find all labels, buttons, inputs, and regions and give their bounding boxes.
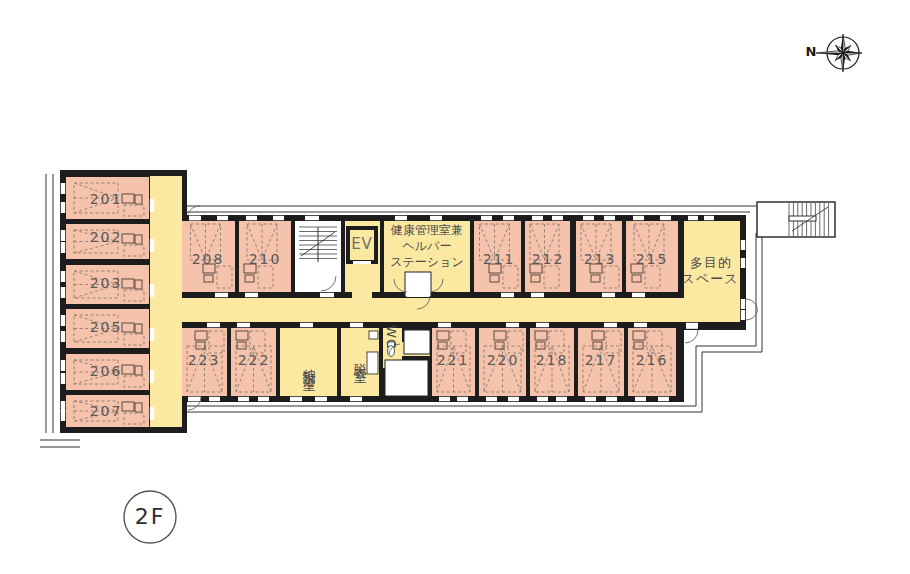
door-gap bbox=[531, 293, 544, 297]
wall-opening bbox=[688, 216, 698, 220]
window-gap bbox=[217, 216, 228, 220]
floor-plan: 201 202 203 205 206 207 208 210 211 212 … bbox=[0, 0, 910, 574]
wall-opening bbox=[430, 216, 442, 220]
wall-opening bbox=[350, 397, 362, 401]
door-gap bbox=[150, 199, 154, 212]
window-gap bbox=[238, 397, 249, 401]
toilet-bowl bbox=[388, 346, 395, 357]
door-gap bbox=[602, 293, 615, 297]
window-gap bbox=[604, 216, 615, 220]
wall-opening bbox=[305, 216, 319, 220]
window-gap bbox=[61, 287, 65, 298]
door-swing-icon bbox=[188, 206, 200, 214]
corridor-junction bbox=[176, 298, 188, 322]
door-gap bbox=[245, 293, 258, 297]
window-gap bbox=[61, 360, 65, 371]
wall-opening bbox=[300, 323, 313, 327]
room-213-fill bbox=[576, 221, 622, 292]
wall-opening bbox=[686, 323, 698, 329]
shower-room bbox=[404, 330, 430, 354]
door-gap bbox=[237, 323, 250, 327]
window-gap bbox=[660, 216, 671, 220]
window-gap bbox=[508, 397, 519, 401]
door-gap bbox=[634, 323, 647, 327]
wall-opening bbox=[188, 397, 201, 401]
wall-opening bbox=[704, 216, 714, 220]
window-gap bbox=[503, 216, 514, 220]
wall-opening bbox=[395, 216, 407, 220]
window-gap bbox=[556, 397, 567, 401]
dressing-fixture bbox=[367, 352, 378, 374]
door-gap bbox=[207, 323, 220, 327]
room-212-fill bbox=[525, 221, 570, 292]
window-gap bbox=[635, 397, 646, 401]
elevator-cab bbox=[350, 230, 374, 260]
window-gap bbox=[246, 216, 257, 220]
window-gap bbox=[481, 216, 492, 220]
window-gap bbox=[532, 216, 543, 220]
window-gap bbox=[61, 331, 65, 342]
door-gap bbox=[438, 323, 451, 327]
window-gap bbox=[61, 373, 65, 384]
window-gap bbox=[537, 397, 548, 401]
wall-opening bbox=[350, 323, 363, 327]
elevator-door-gap bbox=[353, 261, 371, 264]
dressing-sink bbox=[369, 331, 378, 339]
window-gap bbox=[61, 410, 65, 421]
window-gap bbox=[61, 242, 65, 253]
window-gap bbox=[552, 216, 563, 220]
wall-opening bbox=[741, 299, 745, 309]
door-gap bbox=[215, 293, 228, 297]
window-gap bbox=[61, 183, 65, 194]
window-gap bbox=[273, 216, 284, 220]
door-gap bbox=[150, 407, 154, 420]
door-gap bbox=[604, 323, 617, 327]
door-gap bbox=[632, 293, 645, 297]
wall-opening bbox=[741, 240, 745, 250]
window-gap bbox=[658, 397, 669, 401]
door-gap bbox=[536, 323, 549, 327]
room-208-fill bbox=[182, 221, 235, 292]
multipurpose-room bbox=[684, 221, 740, 322]
window-gap bbox=[61, 230, 65, 241]
window-gap bbox=[61, 315, 65, 326]
door-gap bbox=[506, 323, 519, 327]
elevator-lobby-opening bbox=[352, 292, 372, 298]
stair-landing bbox=[789, 216, 816, 221]
window-gap bbox=[585, 397, 596, 401]
main-corridor bbox=[182, 298, 684, 322]
door-gap bbox=[501, 293, 514, 297]
door-swing-icon bbox=[685, 330, 698, 343]
utility-room bbox=[385, 360, 428, 396]
window-gap bbox=[258, 397, 269, 401]
window-gap bbox=[633, 216, 644, 220]
window-gap bbox=[61, 271, 65, 282]
window-gap bbox=[457, 397, 468, 401]
wall-opening bbox=[741, 258, 745, 268]
wall-opening bbox=[320, 293, 334, 297]
wall-opening bbox=[315, 397, 327, 401]
special-bathroom bbox=[280, 328, 337, 396]
window-gap bbox=[486, 397, 497, 401]
floor-plan-drawing bbox=[0, 0, 910, 574]
door-gap bbox=[150, 239, 154, 252]
floor-badge-circle bbox=[124, 491, 176, 543]
window-gap bbox=[209, 397, 220, 401]
window-gap bbox=[606, 397, 617, 401]
wall-opening bbox=[290, 397, 302, 401]
multipurpose-door-gap bbox=[678, 301, 686, 319]
door-gap bbox=[150, 284, 154, 297]
door-gap bbox=[150, 328, 154, 341]
door-gap bbox=[150, 370, 154, 383]
wall-opening bbox=[741, 310, 745, 320]
window-gap bbox=[61, 202, 65, 213]
window-gap bbox=[439, 397, 450, 401]
window-gap bbox=[583, 216, 594, 220]
wall-opening bbox=[189, 216, 201, 220]
wall-opening bbox=[407, 293, 429, 297]
room-211-fill bbox=[474, 221, 521, 292]
